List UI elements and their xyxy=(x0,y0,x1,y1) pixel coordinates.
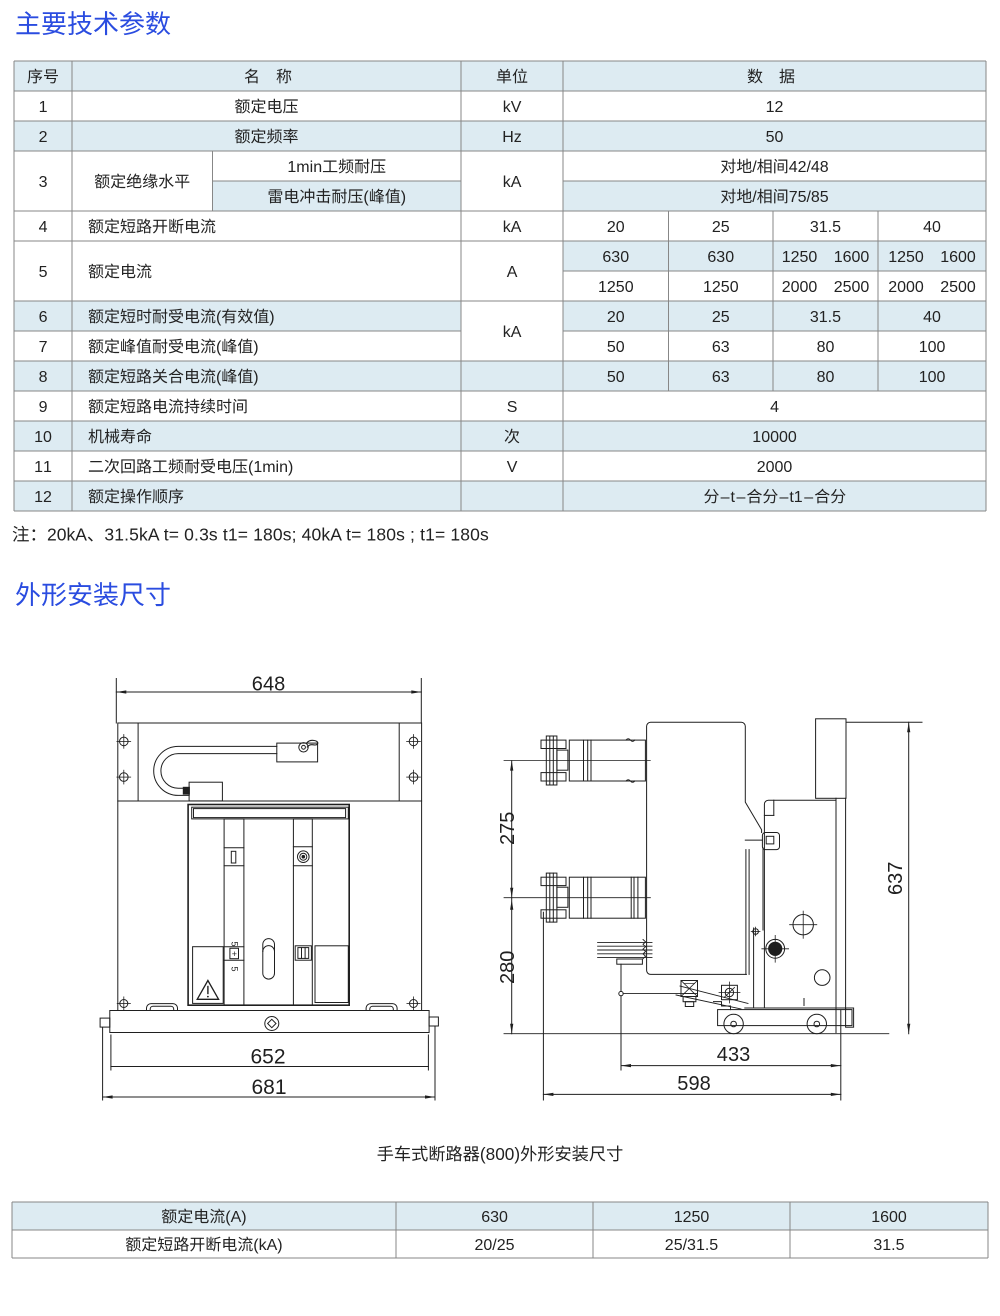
svg-text:630: 630 xyxy=(481,1209,508,1226)
svg-text:40: 40 xyxy=(923,219,941,236)
svg-text:kA: kA xyxy=(503,174,522,191)
svg-text:1250: 1250 xyxy=(674,1209,710,1226)
svg-text:10: 10 xyxy=(34,429,52,446)
svg-text:1250: 1250 xyxy=(703,279,739,296)
svg-text:): ) xyxy=(269,309,274,326)
svg-text:20: 20 xyxy=(607,219,625,236)
svg-text:25: 25 xyxy=(712,309,730,326)
svg-text:637: 637 xyxy=(885,862,907,895)
svg-text:1250: 1250 xyxy=(888,249,924,266)
svg-text:(kA): (kA) xyxy=(253,1237,282,1254)
svg-text:–: – xyxy=(721,489,730,506)
svg-text:20/25: 20/25 xyxy=(475,1237,515,1254)
svg-text:1600: 1600 xyxy=(940,249,976,266)
svg-text:630: 630 xyxy=(707,249,734,266)
svg-text:5: 5 xyxy=(39,264,48,281)
svg-text:2500: 2500 xyxy=(834,279,870,296)
svg-text:12: 12 xyxy=(766,99,784,116)
svg-text:(A): (A) xyxy=(225,1209,246,1226)
svg-text:100: 100 xyxy=(919,339,946,356)
svg-text:2: 2 xyxy=(39,129,48,146)
svg-text:8: 8 xyxy=(39,369,48,386)
svg-text:25: 25 xyxy=(712,219,730,236)
svg-text:+: + xyxy=(232,949,237,959)
svg-text:4: 4 xyxy=(39,219,48,236)
svg-text:20kA: 20kA xyxy=(47,525,87,545)
svg-text:): ) xyxy=(401,189,406,206)
svg-text:275: 275 xyxy=(497,812,519,845)
svg-text:5: 5 xyxy=(230,942,240,947)
svg-text:1600: 1600 xyxy=(871,1209,907,1226)
svg-text:1250: 1250 xyxy=(598,279,634,296)
svg-text:50: 50 xyxy=(607,339,625,356)
svg-text:/: / xyxy=(752,159,757,176)
svg-text:20: 20 xyxy=(607,309,625,326)
svg-text:25/31.5: 25/31.5 xyxy=(665,1237,718,1254)
svg-text:3: 3 xyxy=(39,174,48,191)
svg-text:63: 63 xyxy=(712,369,730,386)
svg-text:kA: kA xyxy=(503,219,522,236)
svg-text:1: 1 xyxy=(39,99,48,116)
svg-text:/: / xyxy=(752,189,757,206)
svg-text:(: ( xyxy=(216,369,222,386)
svg-text:630: 630 xyxy=(602,249,629,266)
svg-text:kA: kA xyxy=(503,324,522,341)
svg-text:50: 50 xyxy=(766,129,784,146)
svg-text:–: – xyxy=(737,489,746,506)
svg-text:(: ( xyxy=(216,309,222,326)
svg-text:50: 50 xyxy=(607,369,625,386)
svg-text:31.5kA t= 0.3s t1= 180s; 40kA: 31.5kA t= 0.3s t1= 180s; 40kA t= 180s ; … xyxy=(104,525,489,545)
svg-text:42/48: 42/48 xyxy=(789,159,829,176)
svg-text:5: 5 xyxy=(230,967,240,972)
svg-text:80: 80 xyxy=(817,339,835,356)
svg-text:–: – xyxy=(804,489,813,506)
svg-text:): ) xyxy=(253,369,258,386)
svg-text:31.5: 31.5 xyxy=(873,1237,904,1254)
svg-text:(: ( xyxy=(363,189,369,206)
svg-text:31.5: 31.5 xyxy=(810,309,841,326)
svg-text:681: 681 xyxy=(252,1076,287,1099)
svg-text:9: 9 xyxy=(39,399,48,416)
svg-text:1min: 1min xyxy=(287,159,322,176)
svg-text:11: 11 xyxy=(34,459,52,476)
svg-text:(800): (800) xyxy=(480,1144,520,1164)
svg-text:63: 63 xyxy=(712,339,730,356)
svg-text:12: 12 xyxy=(34,489,52,506)
svg-text:75/85: 75/85 xyxy=(789,189,829,206)
svg-text:kV: kV xyxy=(503,99,522,116)
svg-text:80: 80 xyxy=(817,369,835,386)
svg-text:433: 433 xyxy=(717,1044,750,1066)
svg-text:6: 6 xyxy=(39,309,48,326)
svg-text:–: – xyxy=(780,489,789,506)
svg-text:1250: 1250 xyxy=(782,249,818,266)
svg-text:2000: 2000 xyxy=(782,279,818,296)
svg-text:1600: 1600 xyxy=(834,249,870,266)
svg-text:10000: 10000 xyxy=(752,429,797,446)
svg-text:): ) xyxy=(253,339,258,356)
svg-text:31.5: 31.5 xyxy=(810,219,841,236)
svg-text:652: 652 xyxy=(251,1046,286,1069)
svg-text:100: 100 xyxy=(919,369,946,386)
svg-text:2000: 2000 xyxy=(888,279,924,296)
svg-text:598: 598 xyxy=(677,1073,710,1095)
svg-text:7: 7 xyxy=(39,339,48,356)
svg-text:A: A xyxy=(507,264,518,281)
svg-text:(: ( xyxy=(216,339,222,356)
svg-text:648: 648 xyxy=(252,674,285,696)
svg-text:V: V xyxy=(507,459,518,476)
svg-text:S: S xyxy=(507,399,518,416)
svg-text:t: t xyxy=(731,489,736,506)
svg-text:(1min): (1min) xyxy=(248,459,293,476)
svg-text:2500: 2500 xyxy=(940,279,976,296)
svg-text:Hz: Hz xyxy=(502,129,522,146)
svg-text:280: 280 xyxy=(497,951,519,984)
svg-text:4: 4 xyxy=(770,399,779,416)
svg-text:2000: 2000 xyxy=(757,459,793,476)
svg-text:40: 40 xyxy=(923,309,941,326)
svg-text:t1: t1 xyxy=(789,489,802,506)
